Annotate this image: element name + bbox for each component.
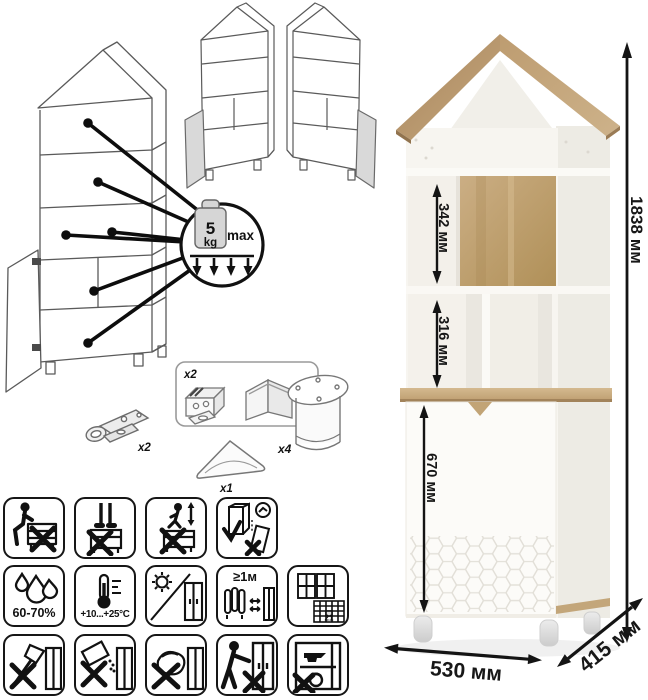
cabinet-leg xyxy=(414,616,432,642)
dim-upper-niche: 342 мм xyxy=(435,203,451,253)
warning-row-1 xyxy=(0,497,390,559)
handle-qty-label: x1 xyxy=(219,483,233,495)
no-abrasives-icon xyxy=(74,634,136,696)
instruction-sheet: 5 kg max x2 x2 xyxy=(0,0,648,700)
ventilation-icon: 21 xyxy=(287,565,349,627)
dim-door-section: 670 мм xyxy=(423,453,439,503)
min-distance-label: ≥1м xyxy=(233,569,257,584)
door-hinge-left-variant xyxy=(185,3,274,188)
humidity-label: 60-70% xyxy=(12,607,55,620)
load-value-label: 5 xyxy=(206,219,215,238)
no-jumping-icon xyxy=(145,497,207,559)
shelf-load-limit-badge: 5 kg max xyxy=(181,200,263,286)
product-view: 1838 мм 342 мм 316 мм 670 мм 530 мм 415 … xyxy=(380,0,648,700)
cabinet-render xyxy=(380,0,648,700)
cabinet-body xyxy=(400,60,612,646)
load-unit-label: kg xyxy=(204,237,217,249)
hinge-part: x2 xyxy=(85,410,152,454)
anchor-to-wall-icon xyxy=(216,497,278,559)
hinge-mark-bottom xyxy=(32,344,41,351)
leg-qty-label: x4 xyxy=(277,442,292,456)
no-axe-icon xyxy=(3,634,65,696)
handle-part: x1 xyxy=(197,441,265,495)
temperature-label: +10...+25°C xyxy=(80,610,129,620)
hinge-qty-label: x2 xyxy=(137,442,151,454)
heater-distance-icon: ≥1м xyxy=(216,565,278,627)
honeycomb-pattern xyxy=(410,536,554,612)
hinge-mark-top xyxy=(32,258,41,265)
humidity-icon: 60-70% xyxy=(3,565,65,627)
no-overloading-icon xyxy=(287,634,349,696)
door-hinge-right-variant xyxy=(287,3,376,188)
avoid-sunlight-icon xyxy=(145,565,207,627)
dim-total-height: 1838 мм xyxy=(626,196,646,264)
shelf-load-leaders xyxy=(66,123,200,343)
no-dragging-icon xyxy=(216,634,278,696)
calendar-day-label: 21 xyxy=(325,614,334,623)
dim-middle-niche: 316 мм xyxy=(435,316,451,366)
warning-row-2: 60-70% +10...+25°C ≥1м xyxy=(0,565,390,627)
temperature-icon: +10...+25°C xyxy=(74,565,136,627)
no-standing-icon xyxy=(74,497,136,559)
assembly-line-art: 5 kg max x2 x2 xyxy=(0,0,392,496)
bracket-qty-label: x2 xyxy=(183,369,197,381)
cabinet-leg xyxy=(540,620,558,646)
cabinet-leg xyxy=(584,612,600,634)
warning-row-3 xyxy=(0,634,390,696)
no-wet-sponge-icon xyxy=(145,634,207,696)
no-sitting-icon xyxy=(3,497,65,559)
load-max-label: max xyxy=(227,228,255,243)
